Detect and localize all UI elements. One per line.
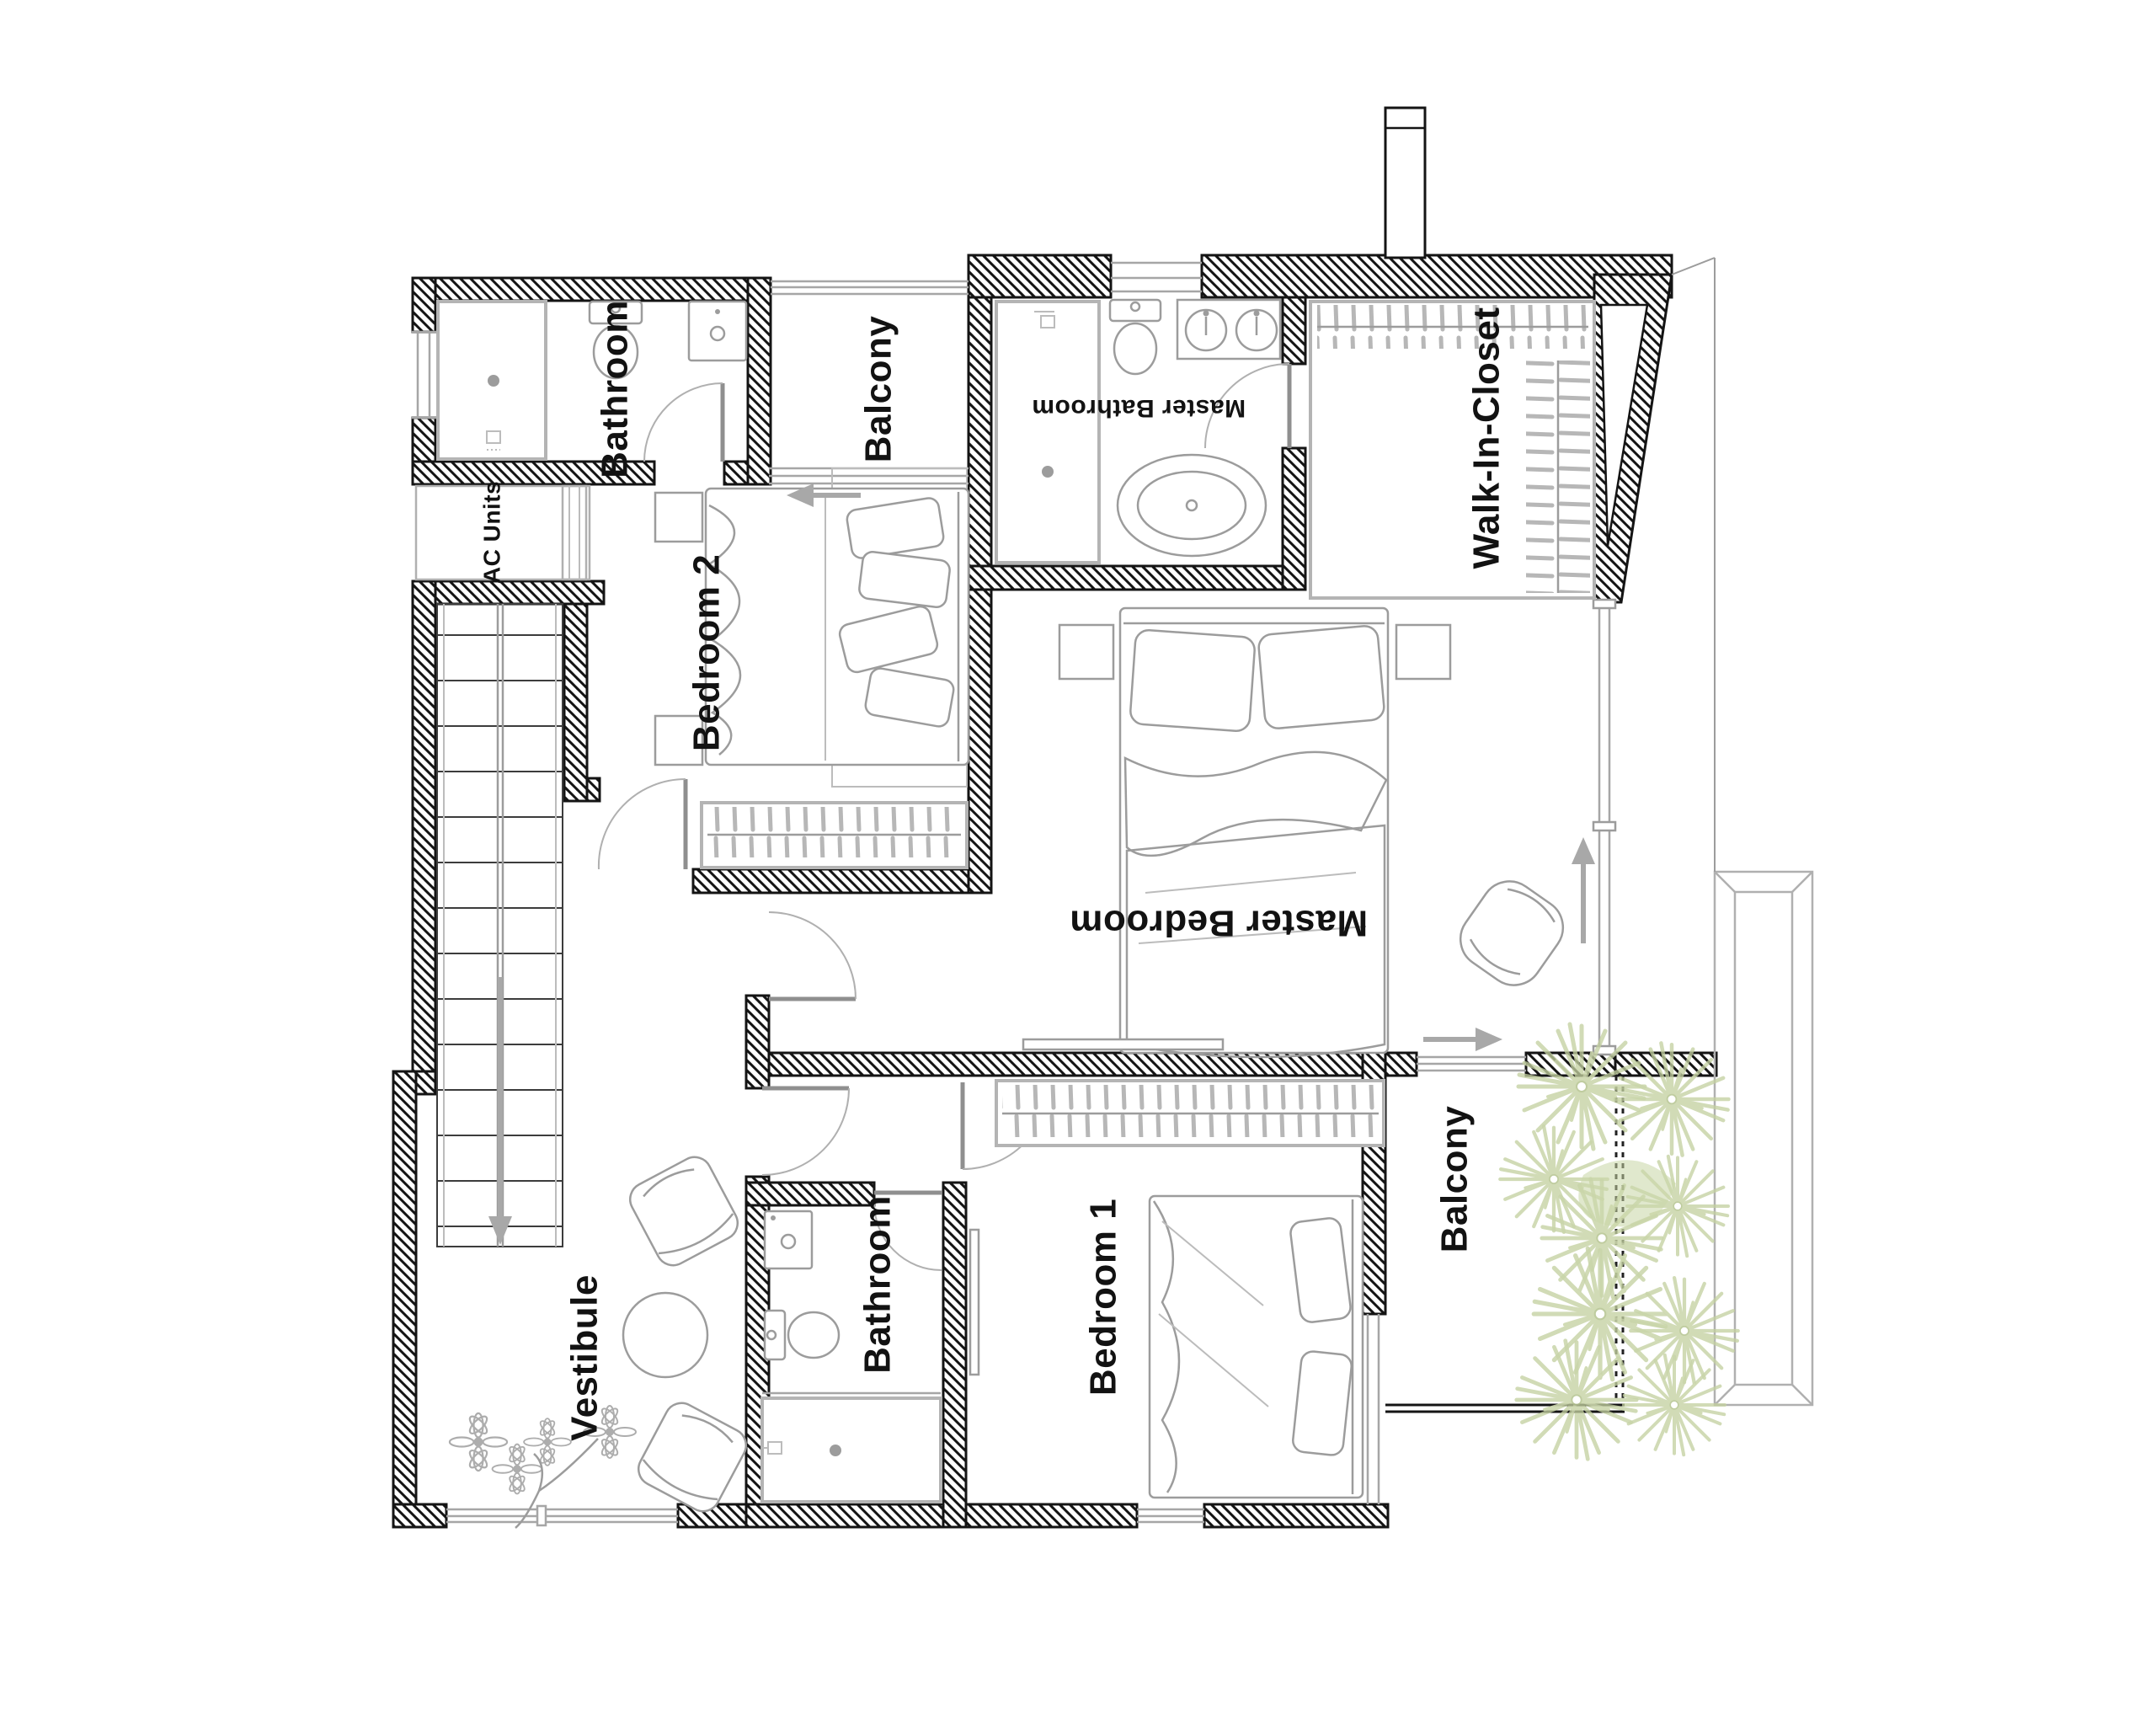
wall-bathroom-b-right xyxy=(943,1183,966,1527)
master-bathroom-fixtures xyxy=(996,300,1280,563)
window-vestibule-bottom xyxy=(446,1506,678,1525)
room-label-bedroom-1: Bedroom 1 xyxy=(1083,1199,1124,1396)
slider-balcony-bottom xyxy=(1417,1057,1526,1071)
room-label-master-bedroom: Master Bedroom xyxy=(1070,902,1368,943)
wall-top-right-a xyxy=(969,255,1111,297)
staircase xyxy=(437,604,563,1247)
master-toilet-icon xyxy=(1110,300,1161,374)
balcony-bottom-extras xyxy=(1423,1028,1502,1051)
wall-stairs-top xyxy=(413,581,604,604)
wall-bottom-b xyxy=(1204,1504,1388,1527)
door-bedroom-2 xyxy=(599,779,686,869)
room-label-ac-units: AC Units xyxy=(478,481,504,584)
bed-bedroom1-icon xyxy=(1150,1196,1363,1498)
wall-masterbath-bottom xyxy=(969,566,1305,590)
wall-master-south-a xyxy=(769,1053,1417,1076)
round-side-table-icon xyxy=(623,1293,707,1377)
chimney xyxy=(1385,108,1425,258)
wall-stairs-right-nib xyxy=(587,778,600,801)
room-label-bathroom-top-left: Bathroom xyxy=(595,300,636,478)
sink-icon xyxy=(689,302,746,360)
wall-bathroom-tl-right xyxy=(748,278,771,484)
wall-stairs-right xyxy=(564,604,587,801)
floor-plan-svg: Bathroom Balcony Master Bathroom Walk-In… xyxy=(0,0,2156,1725)
window-bedroom1-bottom xyxy=(1137,1509,1204,1522)
room-label-balcony-bottom: Balcony xyxy=(1434,1106,1476,1253)
floor-plan-canvas: Bathroom Balcony Master Bathroom Walk-In… xyxy=(0,0,2156,1725)
armchair-icon xyxy=(624,1151,744,1271)
railing-balcony-top xyxy=(771,281,969,294)
wall-bottom-a xyxy=(746,1504,1137,1527)
toilet-icon xyxy=(765,1311,839,1359)
wall-topleft-top xyxy=(413,278,771,301)
master-shower-drain-icon xyxy=(1042,466,1054,478)
wall-vestibule-left xyxy=(393,1071,416,1527)
armchair-master-icon xyxy=(1449,870,1574,996)
ac-louver-icon xyxy=(563,486,586,579)
nightstand-icon xyxy=(1396,625,1450,679)
nightstand-icon xyxy=(655,493,702,542)
room-label-bathroom-bottom: Bathroom xyxy=(857,1195,899,1374)
window-topleft xyxy=(411,332,436,418)
wall-topleft-left-upper xyxy=(413,278,435,332)
tv-panel-master-icon xyxy=(1023,1039,1223,1049)
room-label-vestibule: Vestibule xyxy=(564,1274,606,1441)
wall-stairs-left xyxy=(413,581,435,1093)
door-master-bedroom xyxy=(769,912,856,999)
room-label-walk-in-closet: Walk-In-Closet xyxy=(1466,307,1508,569)
glass-master-east xyxy=(1593,600,1615,1055)
room-label-balcony-top: Balcony xyxy=(858,316,899,463)
door-bathroom-top-left xyxy=(644,383,723,462)
wall-masterbath-right-upper xyxy=(1283,297,1305,364)
bathroom-top-left-fixtures xyxy=(438,302,746,459)
walk-in-closet-fittings xyxy=(1310,302,1594,598)
nightstand-icon xyxy=(1059,625,1113,679)
palm-plants xyxy=(1500,1024,1738,1459)
master-bedroom-furniture xyxy=(1023,608,1595,1057)
freestanding-bathtub-icon xyxy=(1118,455,1266,556)
closet-bedroom2 xyxy=(702,803,967,868)
master-shower-icon xyxy=(996,302,1099,563)
wall-bathroom-b-top xyxy=(746,1183,874,1205)
wall-vestibule-bottom-left xyxy=(393,1504,446,1527)
shower-icon xyxy=(762,1393,941,1502)
window-masterbath-top xyxy=(1111,263,1202,291)
room-label-bedroom-2: Bedroom 2 xyxy=(686,554,728,751)
window-bedroom1-east xyxy=(1368,1314,1379,1504)
bed-master-icon xyxy=(1120,608,1388,1057)
armchair-icon xyxy=(632,1397,752,1517)
room-label-master-bathroom: Master Bathroom xyxy=(1032,394,1246,422)
terrace-outline xyxy=(1672,258,1812,1405)
closet-bedroom1 xyxy=(996,1081,1384,1146)
slide-right-arrow-icon xyxy=(1423,1028,1502,1051)
tv-panel-bedroom1-icon xyxy=(970,1230,979,1375)
wall-bedroom2-south xyxy=(693,869,991,893)
double-sink-vanity-icon xyxy=(1177,300,1280,359)
door-hall xyxy=(762,1088,849,1175)
sink-icon xyxy=(765,1211,812,1268)
shower-drain-icon xyxy=(488,375,499,387)
slide-up-arrow-icon xyxy=(1572,837,1595,943)
window-balcony-top-sill xyxy=(769,468,969,483)
bed-bedroom2-icon xyxy=(706,489,969,765)
wall-hall-stub xyxy=(746,996,769,1088)
bedroom-1-furniture xyxy=(996,1081,1384,1498)
wall-masterbath-right-lower xyxy=(1283,448,1305,590)
